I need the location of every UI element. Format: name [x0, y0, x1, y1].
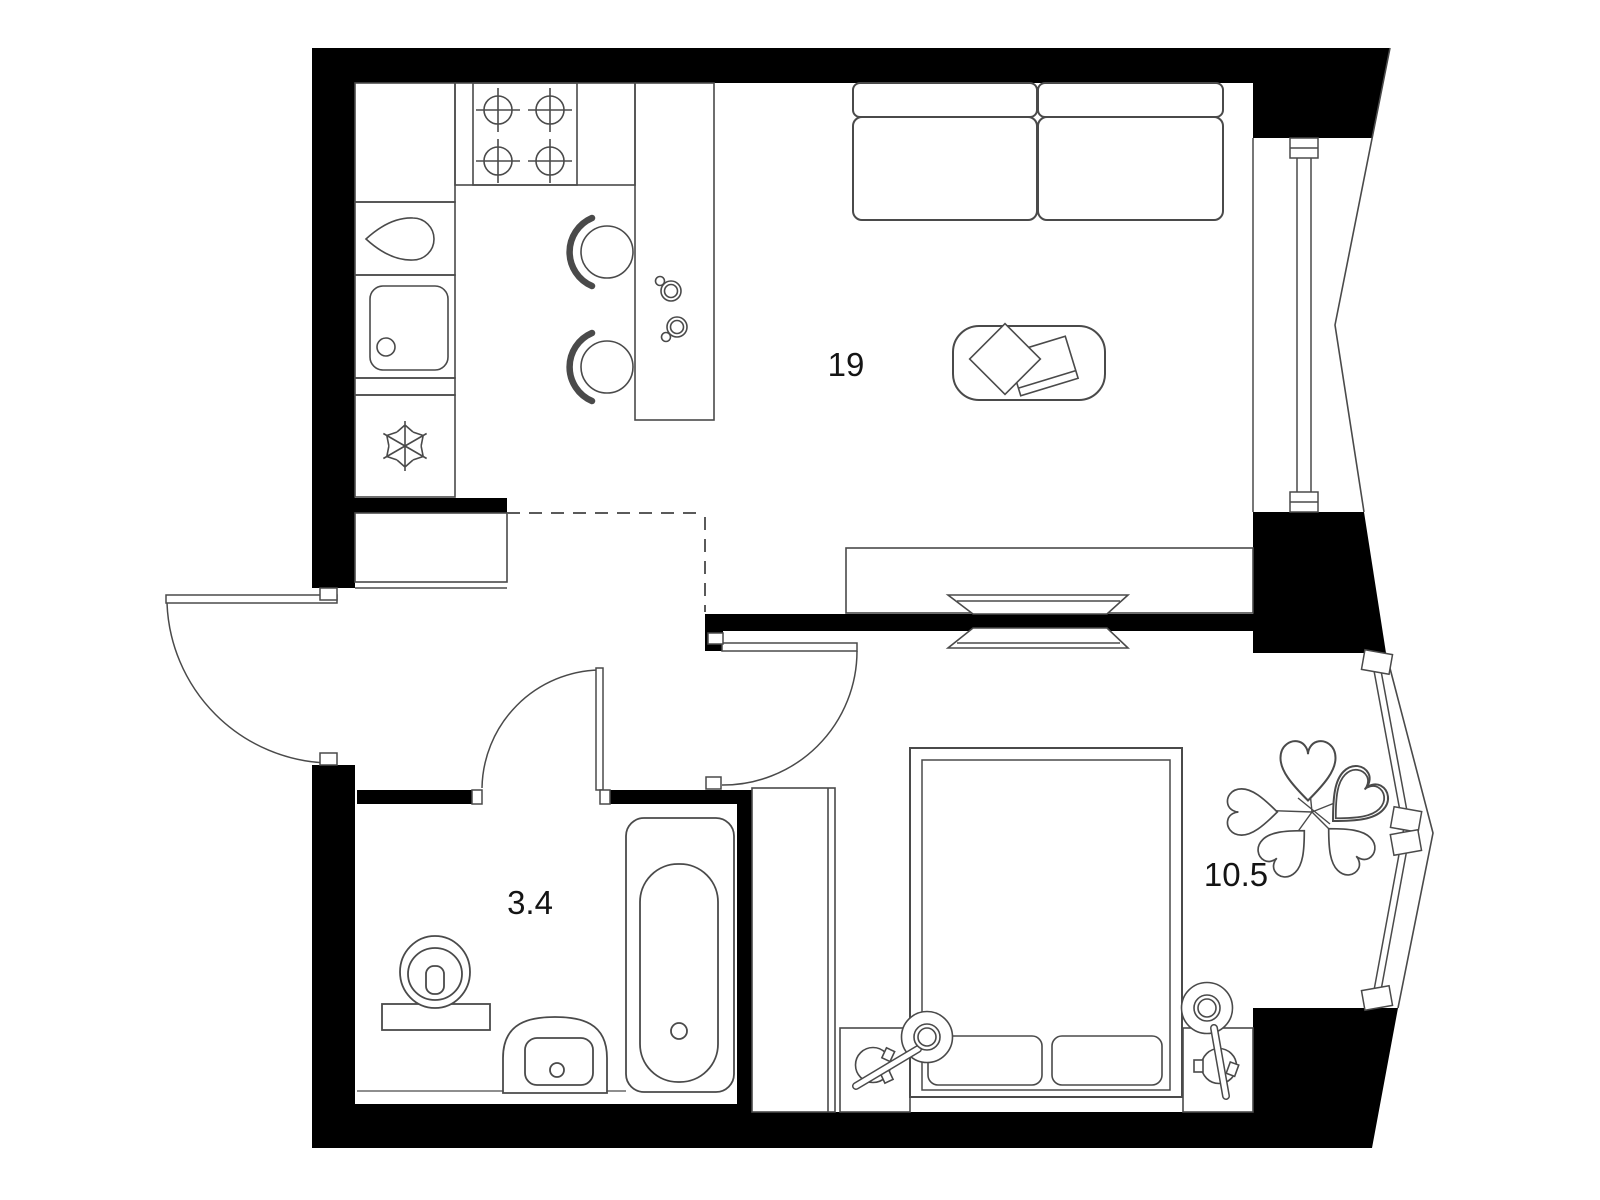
basin-drain	[550, 1063, 564, 1077]
room-label-bathroom: 3.4	[507, 884, 553, 921]
kitchen-counter-kettle-section	[355, 202, 455, 275]
door-leaf	[166, 595, 337, 603]
wall-bathroom-east	[737, 790, 752, 1112]
bathroom-door	[472, 668, 610, 804]
door-swing-arc	[722, 651, 857, 785]
living-room-window	[1253, 138, 1318, 512]
window-frame-cap	[1361, 650, 1392, 675]
bathtub-icon	[626, 818, 734, 1092]
cup-icon	[662, 317, 688, 342]
bathroom	[357, 818, 734, 1093]
bar-counter	[635, 83, 714, 420]
wall-bathroom-north-left	[357, 790, 472, 804]
kitchen	[355, 83, 714, 497]
kitchen-sink-icon	[370, 286, 448, 370]
kitchen-counter-strip	[455, 83, 635, 185]
kitchen-shelf	[355, 378, 455, 395]
tv-icon	[948, 595, 1128, 614]
bar-stool-icon	[570, 333, 633, 401]
wall-bathroom-north-right	[610, 790, 737, 804]
room-label-bedroom: 10.5	[1204, 856, 1268, 893]
sofa-seat	[1038, 117, 1223, 220]
room-label-living: 19	[828, 346, 865, 383]
cup-icon	[656, 277, 682, 302]
door-swing-arc	[167, 603, 327, 763]
pillow-icon	[1052, 1036, 1162, 1085]
hallway	[355, 513, 705, 612]
sink-drain	[377, 338, 395, 356]
window-glazing-line	[1374, 668, 1404, 993]
tv-icon	[948, 628, 1128, 648]
washbasin-icon	[503, 1017, 607, 1093]
door-jamb	[472, 790, 482, 804]
door-leaf	[722, 643, 857, 651]
wall-column-mid-right	[1253, 512, 1386, 653]
tub-drain	[671, 1023, 687, 1039]
door-swing-arc	[482, 670, 599, 788]
stove-burners-icon	[476, 88, 572, 183]
wall-left-lower	[312, 765, 355, 1148]
sofa-back	[853, 83, 1037, 117]
wardrobe	[752, 788, 835, 1112]
bar-stool-icon	[570, 218, 633, 286]
kitchen-cabinet-top	[355, 83, 455, 202]
wall-kitchen-stub	[355, 498, 507, 513]
toilet-icon	[382, 936, 490, 1030]
sofa	[853, 83, 1223, 220]
coffee-table	[953, 324, 1105, 400]
kettle-icon	[366, 218, 434, 260]
floor-plan-svg: 19 3.4 10.5	[0, 0, 1600, 1200]
door-jamb	[320, 753, 337, 765]
door-jamb	[708, 633, 723, 644]
window-frame-cap	[1361, 986, 1392, 1011]
floor-plan-page: 19 3.4 10.5	[0, 0, 1600, 1200]
door-leaf	[596, 668, 603, 790]
living-room	[846, 83, 1253, 648]
sofa-seat	[853, 117, 1037, 220]
wall-left-upper	[312, 83, 355, 588]
toilet-flush	[426, 966, 444, 994]
door-jamb	[320, 588, 337, 600]
bedroom-door	[706, 633, 857, 789]
window-frame-cap	[1390, 807, 1421, 833]
entrance-door	[166, 588, 337, 765]
zone-boundary-dashed-line	[507, 513, 705, 612]
bedroom-window	[1361, 650, 1421, 1011]
tv-console	[846, 548, 1253, 648]
hallway-cabinet	[355, 513, 507, 582]
door-jamb	[706, 777, 721, 789]
window-frame-cap	[1390, 830, 1421, 856]
fridge-snowflake-icon	[379, 421, 430, 471]
door-jamb	[600, 790, 610, 804]
sofa-back	[1038, 83, 1223, 117]
